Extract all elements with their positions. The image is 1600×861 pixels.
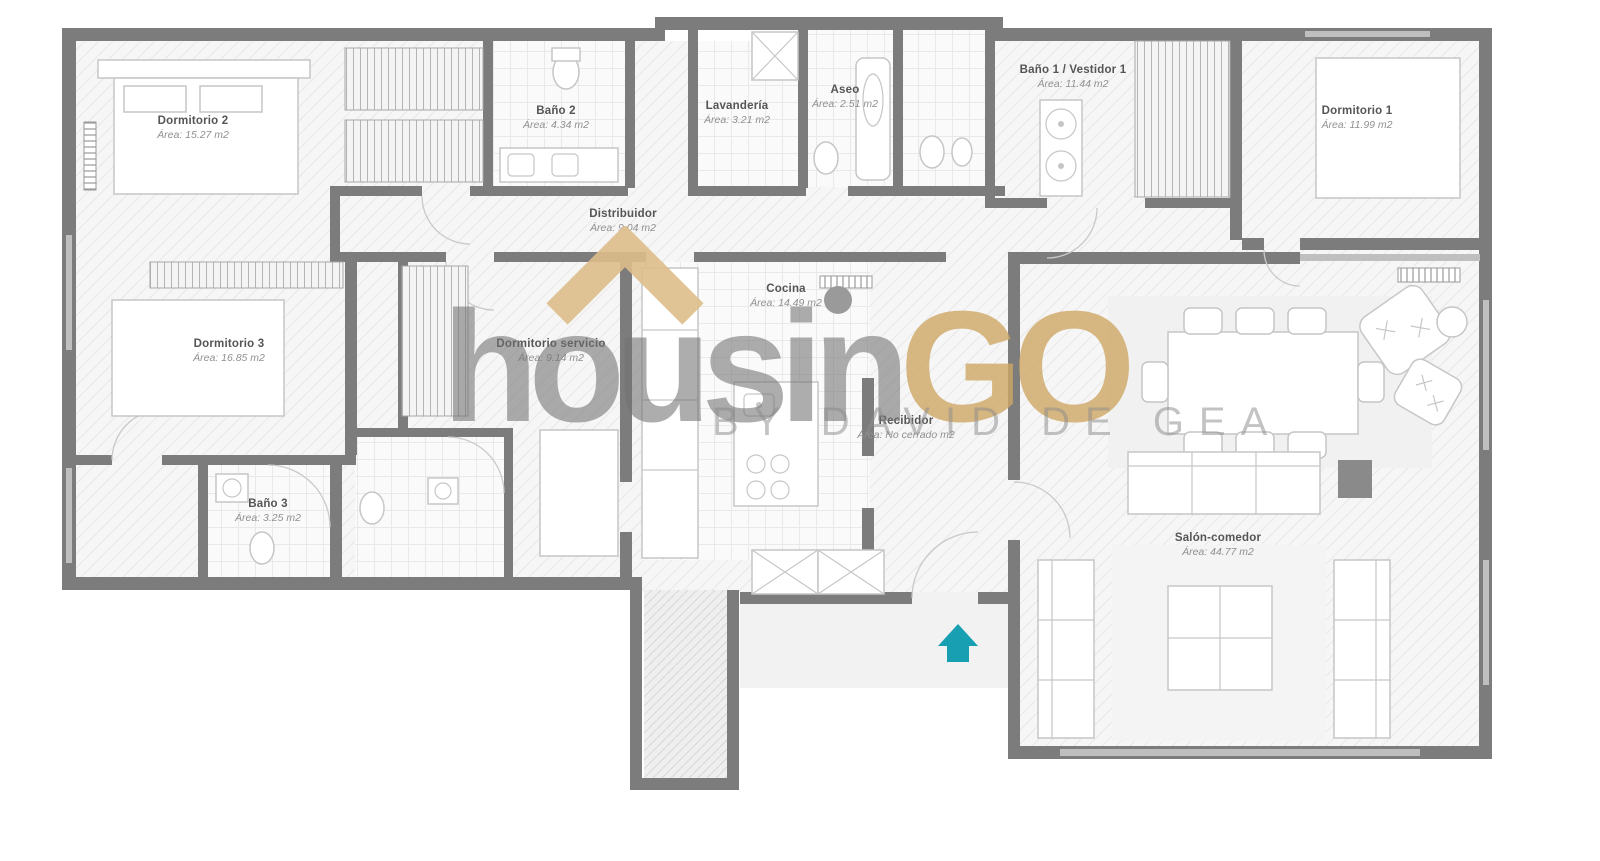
room-label-cocina: Cocina Área: 14.49 m2 — [750, 283, 822, 309]
room-label-recibidor: Recibidor Área: No cerrado m2 — [857, 415, 954, 441]
room-label-distribuidor: Distribuidor Área: 9.04 m2 — [589, 208, 657, 234]
room-label-lavanderia: Lavandería Área: 3.21 m2 — [704, 100, 770, 126]
room-label-bano-2: Baño 2 Área: 4.34 m2 — [523, 105, 589, 131]
room-label-dormitorio-3: Dormitorio 3 Área: 16.85 m2 — [193, 338, 265, 364]
room-label-bano-3: Baño 3 Área: 3.25 m2 — [235, 498, 301, 524]
room-label-dormitorio-2: Dormitorio 2 Área: 15.27 m2 — [157, 115, 229, 141]
floor-plan-page: Dormitorio 2 Área: 15.27 m2 Baño 2 Área:… — [0, 0, 1600, 861]
room-label-dormitorio-servicio: Dormitorio servicio Área: 9.14 m2 — [496, 338, 605, 364]
room-label-salon-comedor: Salón-comedor Área: 44.77 m2 — [1175, 532, 1261, 558]
room-label-bano-1-vestidor-1: Baño 1 / Vestidor 1 Área: 11.44 m2 — [1020, 64, 1127, 90]
elevator-shaft — [752, 550, 884, 594]
room-label-aseo: Aseo Área: 2.51 m2 — [812, 84, 878, 110]
room-label-dormitorio-1: Dormitorio 1 Área: 11.99 m2 — [1321, 105, 1392, 131]
